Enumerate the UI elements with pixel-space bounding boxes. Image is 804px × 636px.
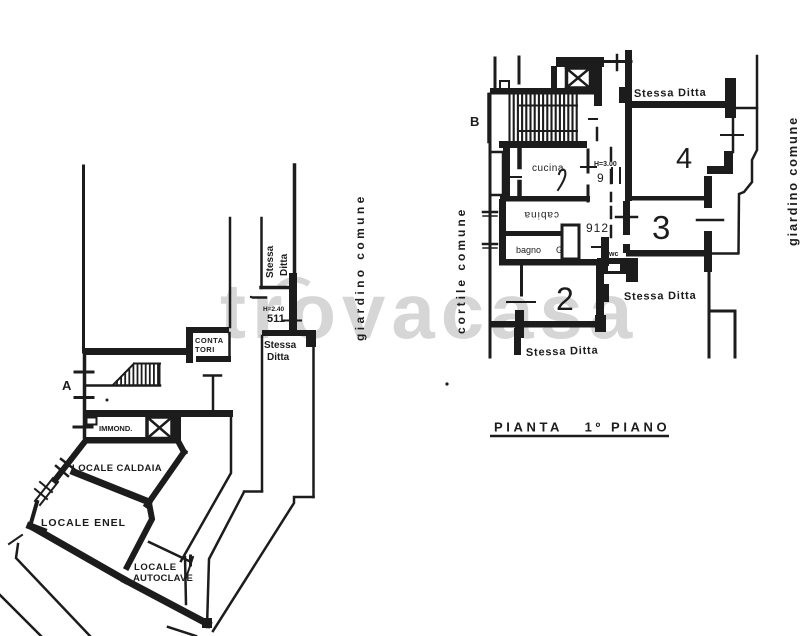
svg-text:9: 9	[597, 171, 604, 185]
svg-text:A: A	[62, 378, 72, 393]
svg-text:Stessa Ditta: Stessa Ditta	[624, 290, 697, 303]
svg-text:912: 912	[586, 221, 609, 235]
svg-text:H=2.40: H=2.40	[263, 306, 285, 313]
svg-text:Stessa Ditta: Stessa Ditta	[526, 344, 599, 359]
svg-text:giardino comune: giardino comune	[353, 193, 367, 341]
svg-text:wc: wc	[608, 251, 618, 258]
svg-text:Stessa Ditta: Stessa Ditta	[634, 87, 707, 100]
svg-text:giardino comune: giardino comune	[785, 116, 800, 246]
svg-text:cucina: cucina	[532, 163, 564, 174]
svg-text:AUTOCLAVE: AUTOCLAVE	[133, 573, 193, 584]
svg-text:cortile comune: cortile comune	[454, 207, 468, 334]
svg-text:PIANTA 1º PIANO: PIANTA 1º PIANO	[494, 420, 670, 435]
svg-text:G: G	[556, 245, 563, 255]
svg-text:4: 4	[676, 143, 692, 175]
svg-text:IMMOND.: IMMOND.	[99, 424, 132, 433]
svg-text:CONTA: CONTA	[195, 336, 224, 345]
svg-text:Ditta: Ditta	[279, 253, 290, 276]
svg-text:LOCALE ENEL: LOCALE ENEL	[41, 517, 126, 529]
svg-text:H=3.00: H=3.00	[594, 161, 617, 168]
svg-text:TORI: TORI	[195, 345, 215, 354]
svg-text:LOCALE: LOCALE	[134, 562, 177, 573]
svg-text:Ditta: Ditta	[267, 352, 290, 363]
svg-text:bagno: bagno	[516, 245, 541, 255]
svg-text:Stessa: Stessa	[264, 340, 297, 351]
svg-text:B: B	[470, 114, 479, 129]
svg-text:LOCALE CALDAIA: LOCALE CALDAIA	[72, 463, 162, 474]
svg-text:2: 2	[556, 281, 574, 317]
svg-text:3: 3	[652, 209, 670, 246]
svg-text:cabina: cabina	[524, 209, 559, 220]
svg-text:Stessa: Stessa	[265, 245, 276, 278]
svg-text:511: 511	[267, 313, 285, 325]
